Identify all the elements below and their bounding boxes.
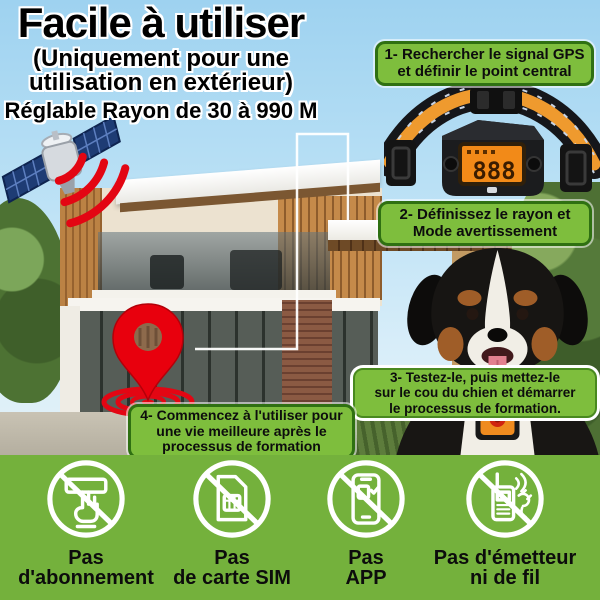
product-infographic: 888 bbox=[0, 0, 600, 600]
feature-label: Pas d'abonnement bbox=[18, 548, 154, 589]
feature-no-transmitter: Pas d'émetteur ni de fil bbox=[418, 456, 592, 589]
range-note: Réglable Rayon de 30 à 990 M bbox=[0, 99, 322, 122]
no-app-icon bbox=[323, 456, 409, 542]
feature-label: Pas APP bbox=[345, 548, 386, 589]
feature-no-subscription: Pas d'abonnement bbox=[11, 456, 161, 589]
dog-wearing-collar bbox=[392, 232, 600, 455]
feature-label: Pas de carte SIM bbox=[173, 548, 291, 589]
step-3-label: 3- Testez-le, puis mettez-le sur le cou … bbox=[353, 368, 597, 418]
step-4-label: 4- Commencez à l'utiliser pour une vie m… bbox=[128, 404, 355, 459]
feature-label: Pas d'émetteur ni de fil bbox=[434, 548, 577, 589]
feature-no-sim: Pas de carte SIM bbox=[157, 456, 307, 589]
subtitle: (Uniquement pour une utilisation en exté… bbox=[0, 47, 322, 96]
features-footer: Pas d'abonnement Pas de carte SIM bbox=[0, 455, 600, 600]
step-1-label: 1- Rechercher le signal GPS et définir l… bbox=[375, 41, 594, 86]
no-subscription-icon bbox=[43, 456, 129, 542]
location-pin-icon bbox=[90, 302, 206, 420]
step-2-label: 2- Définissez le rayon et Mode avertisse… bbox=[378, 201, 592, 246]
signal-waves-icon bbox=[50, 148, 165, 260]
gps-collar-device: 888 bbox=[384, 84, 600, 206]
header: Facile à utiliser (Uniquement pour une u… bbox=[0, 2, 322, 122]
no-transmitter-icon bbox=[462, 456, 548, 542]
page-title: Facile à utiliser bbox=[0, 2, 322, 44]
feature-no-app: Pas APP bbox=[296, 456, 436, 589]
collar-screen-value: 888 bbox=[472, 157, 515, 185]
no-sim-card-icon bbox=[189, 456, 275, 542]
